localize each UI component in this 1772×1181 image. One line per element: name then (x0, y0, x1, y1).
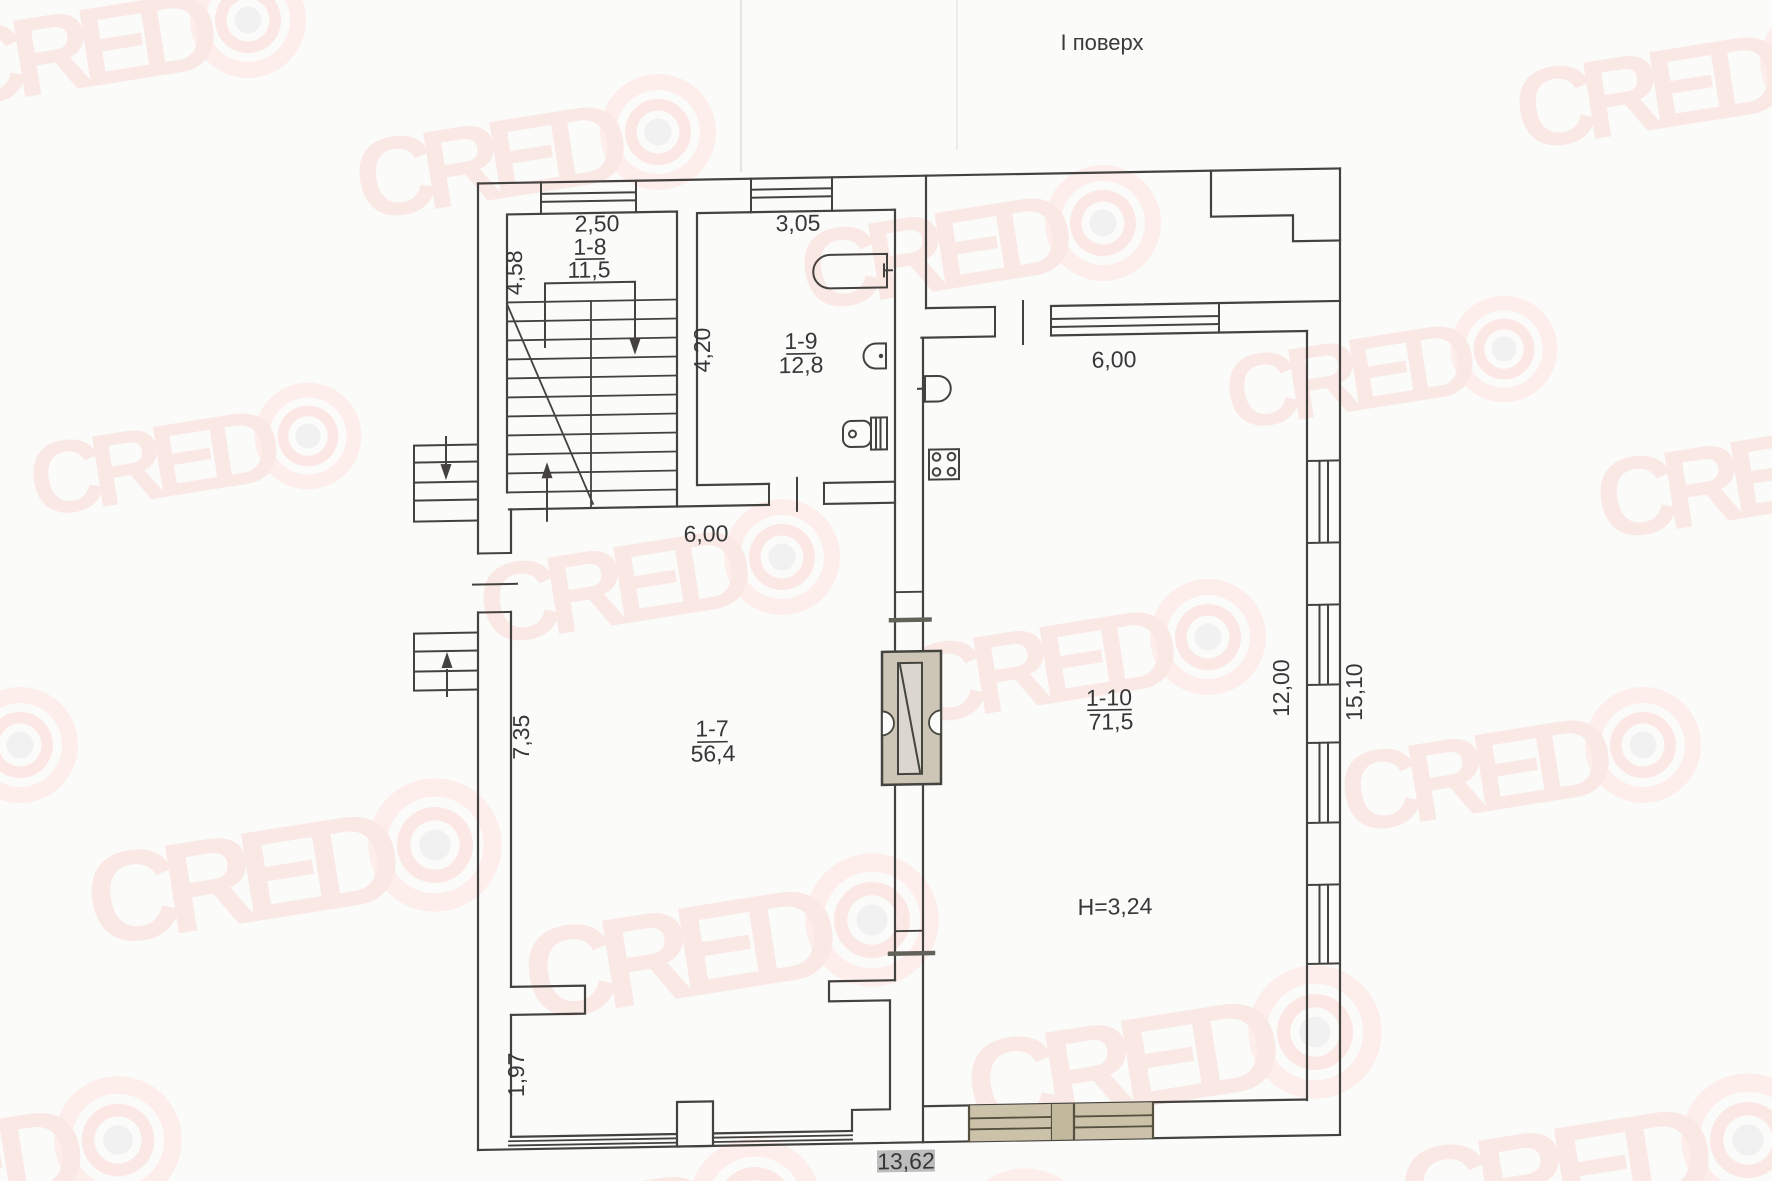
svg-text:І поверх: І поверх (1060, 30, 1143, 55)
svg-text:4,58: 4,58 (501, 250, 527, 295)
svg-text:7,35: 7,35 (508, 715, 534, 760)
svg-text:1-10: 1-10 (1086, 684, 1132, 711)
svg-text:1,97: 1,97 (503, 1052, 529, 1097)
svg-text:15,10: 15,10 (1341, 663, 1367, 721)
svg-text:71,5: 71,5 (1089, 708, 1134, 735)
svg-text:6,00: 6,00 (684, 520, 729, 547)
svg-text:12,8: 12,8 (779, 351, 824, 378)
svg-text:1-7: 1-7 (695, 715, 728, 742)
svg-text:13,62: 13,62 (877, 1148, 935, 1175)
svg-text:H=3,24: H=3,24 (1078, 893, 1153, 920)
svg-text:12,00: 12,00 (1268, 659, 1294, 717)
svg-text:56,4: 56,4 (691, 740, 736, 767)
svg-text:1-9: 1-9 (784, 328, 817, 355)
svg-text:4,20: 4,20 (689, 327, 715, 372)
svg-text:3,05: 3,05 (776, 210, 821, 237)
svg-text:6,00: 6,00 (1092, 346, 1137, 373)
svg-text:11,5: 11,5 (567, 256, 610, 283)
